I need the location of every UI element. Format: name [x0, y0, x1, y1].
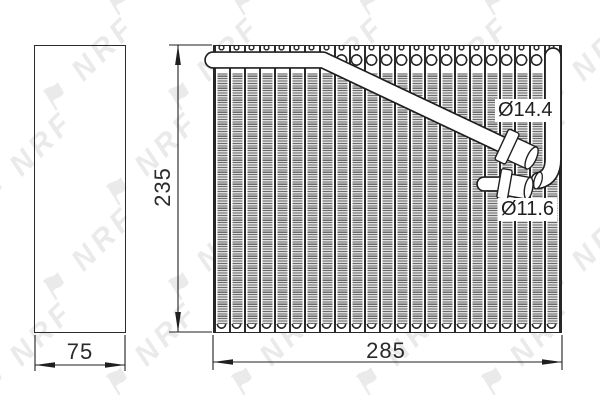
depth-dimension-label: 75 — [50, 341, 110, 363]
height-dimension-lines — [169, 45, 212, 332]
technical-drawing-canvas: ⚑ NRF⚑ NRF⚑ NRF⚑ NRF⚑ NRF⚑ NRF⚑ NRF⚑ NRF… — [0, 0, 600, 400]
lower-port-diameter-label: Ø11.6 — [498, 198, 557, 221]
upper-port-diameter-label: Ø14.4 — [495, 99, 555, 122]
diagonal-pipe — [213, 60, 507, 147]
vertical-pipe — [532, 56, 553, 190]
width-dimension-label: 285 — [356, 340, 416, 362]
height-dimension-label: 235 — [152, 157, 174, 217]
